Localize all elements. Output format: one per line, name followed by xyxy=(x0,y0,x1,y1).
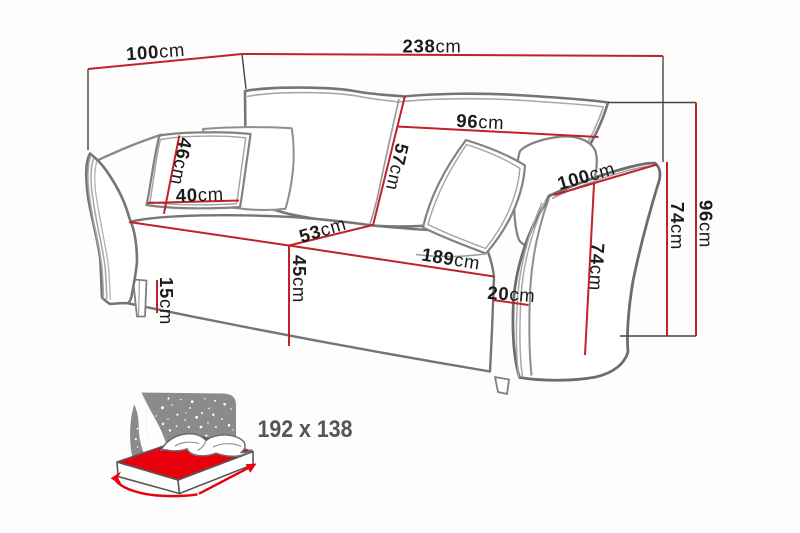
svg-text:74cm: 74cm xyxy=(585,242,608,291)
svg-text:15cm: 15cm xyxy=(156,277,177,325)
svg-text:238cm: 238cm xyxy=(402,36,461,57)
svg-text:96cm: 96cm xyxy=(456,110,505,133)
svg-text:40cm: 40cm xyxy=(175,183,224,206)
svg-text:45cm: 45cm xyxy=(289,255,310,303)
svg-text:192 x 138: 192 x 138 xyxy=(258,416,353,443)
svg-text:20cm: 20cm xyxy=(487,282,536,306)
svg-text:96cm: 96cm xyxy=(696,200,717,248)
svg-text:74cm: 74cm xyxy=(667,202,688,250)
